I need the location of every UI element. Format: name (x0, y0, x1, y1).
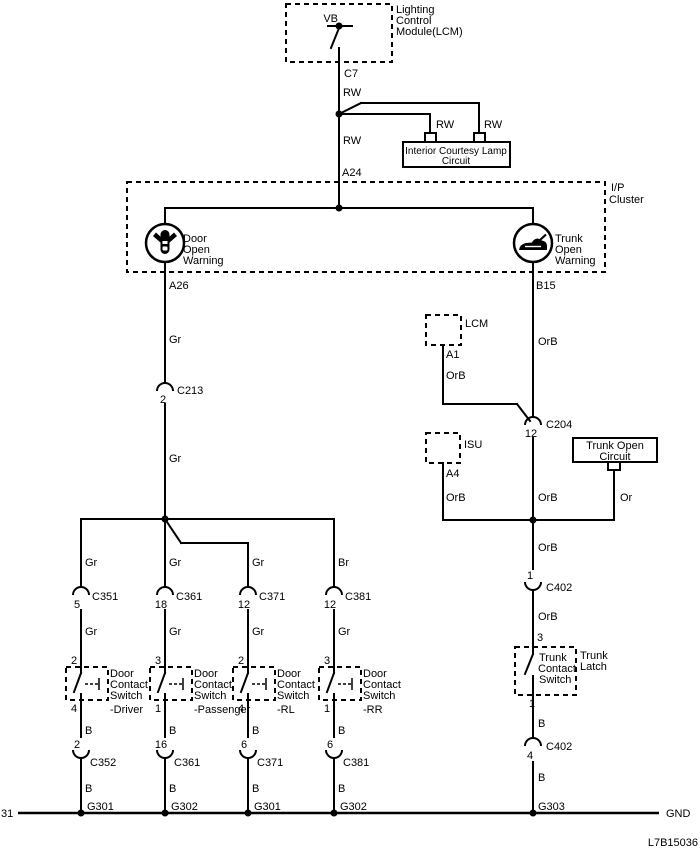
switch-label-line3: Switch (363, 690, 395, 702)
wire-label: Gr (85, 557, 98, 569)
connector-label: C371 (259, 591, 285, 603)
connector-c371-symbol (240, 587, 256, 595)
switch-pin-bottom: 1 (155, 703, 161, 715)
connector-label: C381 (345, 591, 371, 603)
wire-label-orb-a4: OrB (446, 492, 466, 504)
wire-label-orb-3: OrB (538, 542, 558, 554)
connector-c213-symbol (157, 383, 173, 391)
trunk-indicator-label-line3: Warning (555, 255, 596, 267)
wire-label-orb-a1: OrB (446, 370, 466, 382)
switch-blade (241, 673, 248, 692)
trunk-switch-blade (525, 654, 533, 674)
wiring-diagram: Lighting Control Module(LCM) VB C7 RW RW… (0, 0, 700, 853)
ground-label: G302 (340, 801, 367, 813)
connector-pin: 2 (74, 739, 80, 751)
pin-b15-label: B15 (536, 280, 556, 292)
door-contact-switch-driver: 2 4 Door Contact Switch -Driver (66, 655, 148, 737)
connector-c213-label: C213 (177, 385, 203, 397)
bus-right-label: GND (666, 808, 691, 820)
door-contact-switch-rr: 3 1 Door Contact Switch -RR (319, 655, 401, 737)
wire-label-rw-branch2: RW (484, 119, 503, 131)
wire-label: Br (338, 557, 349, 569)
door-contact-switch-rl: 2 4 Door Contact Switch -RL (233, 655, 315, 737)
wire-label-rw-branch1: RW (436, 119, 455, 131)
wire-label-or: Or (620, 492, 633, 504)
wire-label-orb-1: OrB (538, 336, 558, 348)
connector-label: C352 (90, 757, 116, 769)
wire-label: Gr (169, 626, 182, 638)
door-contact-switches: 2 4 Door Contact Switch -Driver 3 1 Door… (66, 655, 401, 737)
connector-label: C361 (176, 591, 202, 603)
switch-blade (158, 673, 165, 692)
connector-label: C381 (343, 757, 369, 769)
connector-pin: 16 (155, 739, 167, 751)
latch-pin-out: 1 (529, 698, 535, 710)
courtesy-lamp-section: Interior Courtesy Lamp Circuit (403, 133, 510, 167)
switch-pin-bottom: 4 (71, 703, 77, 715)
switch-label-line3: Switch (277, 690, 309, 702)
ip-cluster-section: I/P Cluster Door Open Warning Trunk Open… (127, 182, 644, 292)
pin-a26-label: A26 (169, 280, 189, 292)
switch-pin-top: 2 (71, 655, 77, 667)
lcm-switch-blade (331, 28, 339, 48)
connector-c352-symbol (73, 750, 89, 758)
pin-a24-label: A24 (342, 167, 362, 179)
lcm-stub-tag: LCM (465, 318, 488, 330)
connector-pin: 6 (327, 739, 333, 751)
trunk-branch-section: OrB LCM A1 OrB 12 C204 ISU A4 OrB OrB Tr… (426, 272, 657, 817)
door-switch-grounds: B B B B 2 16 6 6 C352 C361 C371 C381 B B… (73, 725, 369, 817)
lcm-title-line3: Module(LCM) (396, 26, 463, 38)
connector-c7-label: C7 (344, 68, 358, 80)
ground-label: G302 (171, 801, 198, 813)
lamp-terminal-1 (425, 133, 436, 142)
diagram-code: L7B15036 (648, 837, 698, 849)
connector-c402b-label: C402 (546, 741, 572, 753)
wire-label-gr-2: Gr (169, 453, 182, 465)
wire-label: B (338, 783, 345, 795)
pin-a4-label: A4 (446, 468, 459, 480)
pin-a1-label: A1 (446, 349, 459, 361)
trunk-latch-tag-line2: Latch (580, 661, 607, 673)
ground-label: G301 (254, 801, 281, 813)
wire-label: B (85, 783, 92, 795)
lamp-branch2-diagonal (339, 103, 361, 114)
switch-pin-bottom: 4 (238, 703, 244, 715)
connector-c204-symbol (525, 417, 541, 425)
lcm-module-section: Lighting Control Module(LCM) VB C7 (286, 4, 463, 80)
latch-pin-in: 3 (537, 632, 543, 644)
switch-pin-top: 3 (324, 655, 330, 667)
switch-pin-bottom: 1 (324, 703, 330, 715)
wire-label: Gr (252, 626, 265, 638)
connector-c204-label: C204 (546, 419, 572, 431)
connector-c402b-symbol (525, 738, 541, 746)
switch-pin-top: 3 (155, 655, 161, 667)
wire-label: Gr (252, 557, 265, 569)
door-indicator-label-line3: Warning (183, 255, 224, 267)
wire-label: Gr (338, 626, 351, 638)
wire-label: Gr (169, 557, 182, 569)
connector-label: C351 (92, 591, 118, 603)
trunk-switch-label-line3: Switch (539, 674, 571, 686)
connector-label: C361 (174, 757, 200, 769)
connector-pin: 5 (74, 599, 80, 611)
ip-cluster-tag-line2: Cluster (609, 194, 644, 206)
isu-stub-box (426, 433, 460, 463)
feed-wires: RW RW RW RW A24 (336, 48, 503, 208)
lamp-terminal-2 (474, 133, 485, 142)
ground-label-g303: G303 (538, 801, 565, 813)
wiring-diagram-page: Lighting Control Module(LCM) VB C7 RW RW… (0, 0, 700, 853)
wire-label: B (252, 783, 259, 795)
connector-c371b-symbol (240, 750, 256, 758)
door-branch-trunk-wire: Gr 2 C213 Gr (81, 272, 334, 543)
switch-blade (327, 673, 334, 692)
switch-label-line3: Switch (110, 690, 142, 702)
wire-label-orb-2: OrB (538, 492, 558, 504)
wire-label: B (338, 725, 345, 737)
connector-c381b-symbol (326, 750, 342, 758)
trunk-open-circuit-terminal (608, 462, 620, 470)
trunk-junction-dot (530, 517, 537, 524)
isu-stub-tag: ISU (464, 439, 482, 451)
wire-label-rw-top: RW (343, 87, 362, 99)
wire-label: B (169, 783, 176, 795)
wire-label: Gr (85, 626, 98, 638)
vb-label: VB (323, 13, 338, 25)
connector-c361b-symbol (157, 750, 173, 758)
connector-pin: 6 (241, 739, 247, 751)
connector-label: C371 (257, 757, 283, 769)
switch-pin-top: 2 (238, 655, 244, 667)
connector-c204-pin: 12 (525, 428, 537, 440)
switch-label-line4: -RL (277, 704, 295, 716)
ground-label: G301 (87, 801, 114, 813)
wire-label-b-1: B (538, 718, 545, 730)
wire-label: B (85, 725, 92, 737)
switch-label-line3: Switch (194, 690, 226, 702)
switch-label-line4: -RR (363, 704, 383, 716)
wire-label: B (252, 725, 259, 737)
switch-blade (74, 673, 81, 692)
wire-label-b-2: B (538, 772, 545, 784)
connector-c361-symbol (157, 587, 173, 595)
wire-label-rw-mid: RW (343, 135, 362, 147)
courtesy-lamp-label-line2: Circuit (442, 156, 471, 167)
wire-label: B (169, 725, 176, 737)
bus-left-label: 31 (1, 808, 13, 820)
connector-c402b-pin: 4 (527, 750, 533, 762)
connector-c402a-symbol (525, 582, 541, 590)
wire-label-orb-4: OrB (538, 611, 558, 623)
connector-c351-symbol (73, 587, 89, 595)
wire-label-gr-1: Gr (169, 334, 182, 346)
rl-branch-diagonal (165, 519, 181, 543)
switch-label-line4: -Driver (110, 704, 143, 716)
ip-cluster-tag-line1: I/P (611, 182, 624, 194)
connector-c381-symbol (326, 587, 342, 595)
lcm-stub-box (426, 315, 461, 345)
connector-c402a-label: C402 (546, 582, 572, 594)
connector-c402a-pin: 1 (527, 570, 533, 582)
